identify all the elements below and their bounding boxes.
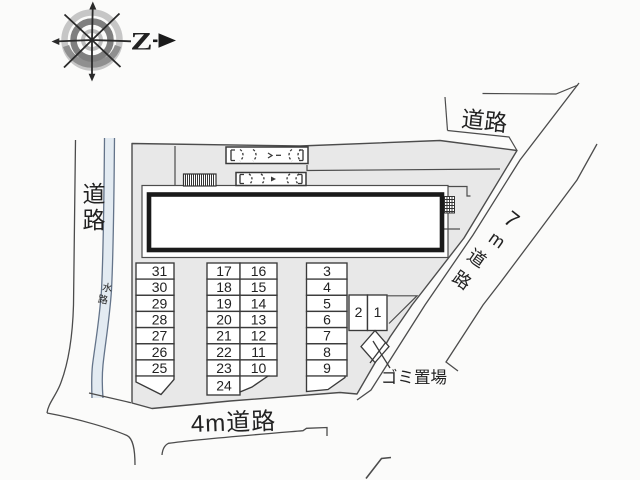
svg-text:10: 10	[251, 360, 267, 376]
svg-text:4: 4	[323, 279, 331, 295]
svg-text:25: 25	[152, 360, 168, 376]
svg-text:7: 7	[323, 328, 331, 344]
svg-text:28: 28	[152, 312, 168, 328]
svg-text:路: 路	[449, 267, 475, 294]
svg-text:15: 15	[251, 279, 267, 295]
svg-text:22: 22	[216, 344, 232, 360]
svg-text:Z: Z	[131, 29, 153, 56]
svg-text:23: 23	[216, 360, 232, 376]
svg-text:31: 31	[152, 263, 168, 279]
svg-text:21: 21	[216, 328, 232, 344]
svg-text:30: 30	[152, 279, 168, 295]
svg-text:水: 水	[101, 281, 113, 295]
svg-text:道: 道	[83, 181, 106, 207]
svg-text:6: 6	[323, 312, 331, 328]
svg-text:26: 26	[152, 344, 168, 360]
svg-text:13: 13	[251, 312, 267, 328]
svg-text:20: 20	[216, 312, 232, 328]
svg-text:道路: 道路	[460, 106, 508, 137]
svg-text:m: m	[485, 228, 509, 253]
svg-text:14: 14	[251, 295, 267, 311]
svg-text:11: 11	[251, 344, 266, 360]
svg-text:路: 路	[83, 207, 106, 233]
svg-text:24: 24	[216, 378, 232, 394]
svg-text:道: 道	[464, 245, 490, 272]
svg-text:16: 16	[251, 263, 267, 279]
svg-text:9: 9	[323, 360, 331, 376]
svg-text:12: 12	[251, 328, 267, 344]
svg-text:8: 8	[323, 344, 331, 360]
svg-text:17: 17	[216, 263, 232, 279]
svg-text:27: 27	[152, 328, 168, 344]
svg-text:5: 5	[323, 295, 331, 311]
svg-text:7: 7	[499, 206, 524, 233]
svg-text:29: 29	[152, 295, 168, 311]
svg-text:4m道路: 4m道路	[190, 408, 276, 438]
svg-text:18: 18	[216, 279, 232, 295]
svg-text:19: 19	[216, 295, 232, 311]
svg-text:3: 3	[323, 263, 331, 279]
svg-text:1: 1	[374, 304, 382, 320]
svg-text:2: 2	[355, 304, 363, 320]
svg-text:ゴミ置場: ゴミ置場	[381, 367, 447, 387]
